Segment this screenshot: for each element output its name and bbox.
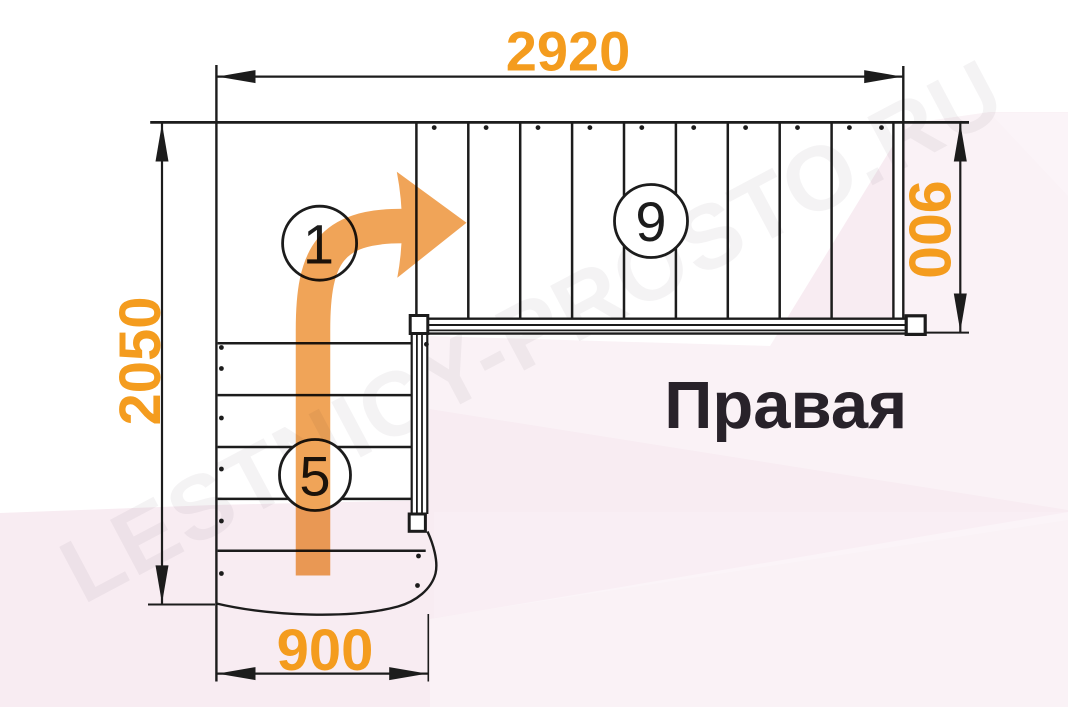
svg-text:900: 900 xyxy=(897,180,963,278)
svg-text:2050: 2050 xyxy=(108,296,173,425)
svg-text:9: 9 xyxy=(635,190,666,253)
svg-text:Правая: Правая xyxy=(664,368,907,443)
svg-text:900: 900 xyxy=(277,618,374,683)
svg-text:2920: 2920 xyxy=(506,20,631,83)
